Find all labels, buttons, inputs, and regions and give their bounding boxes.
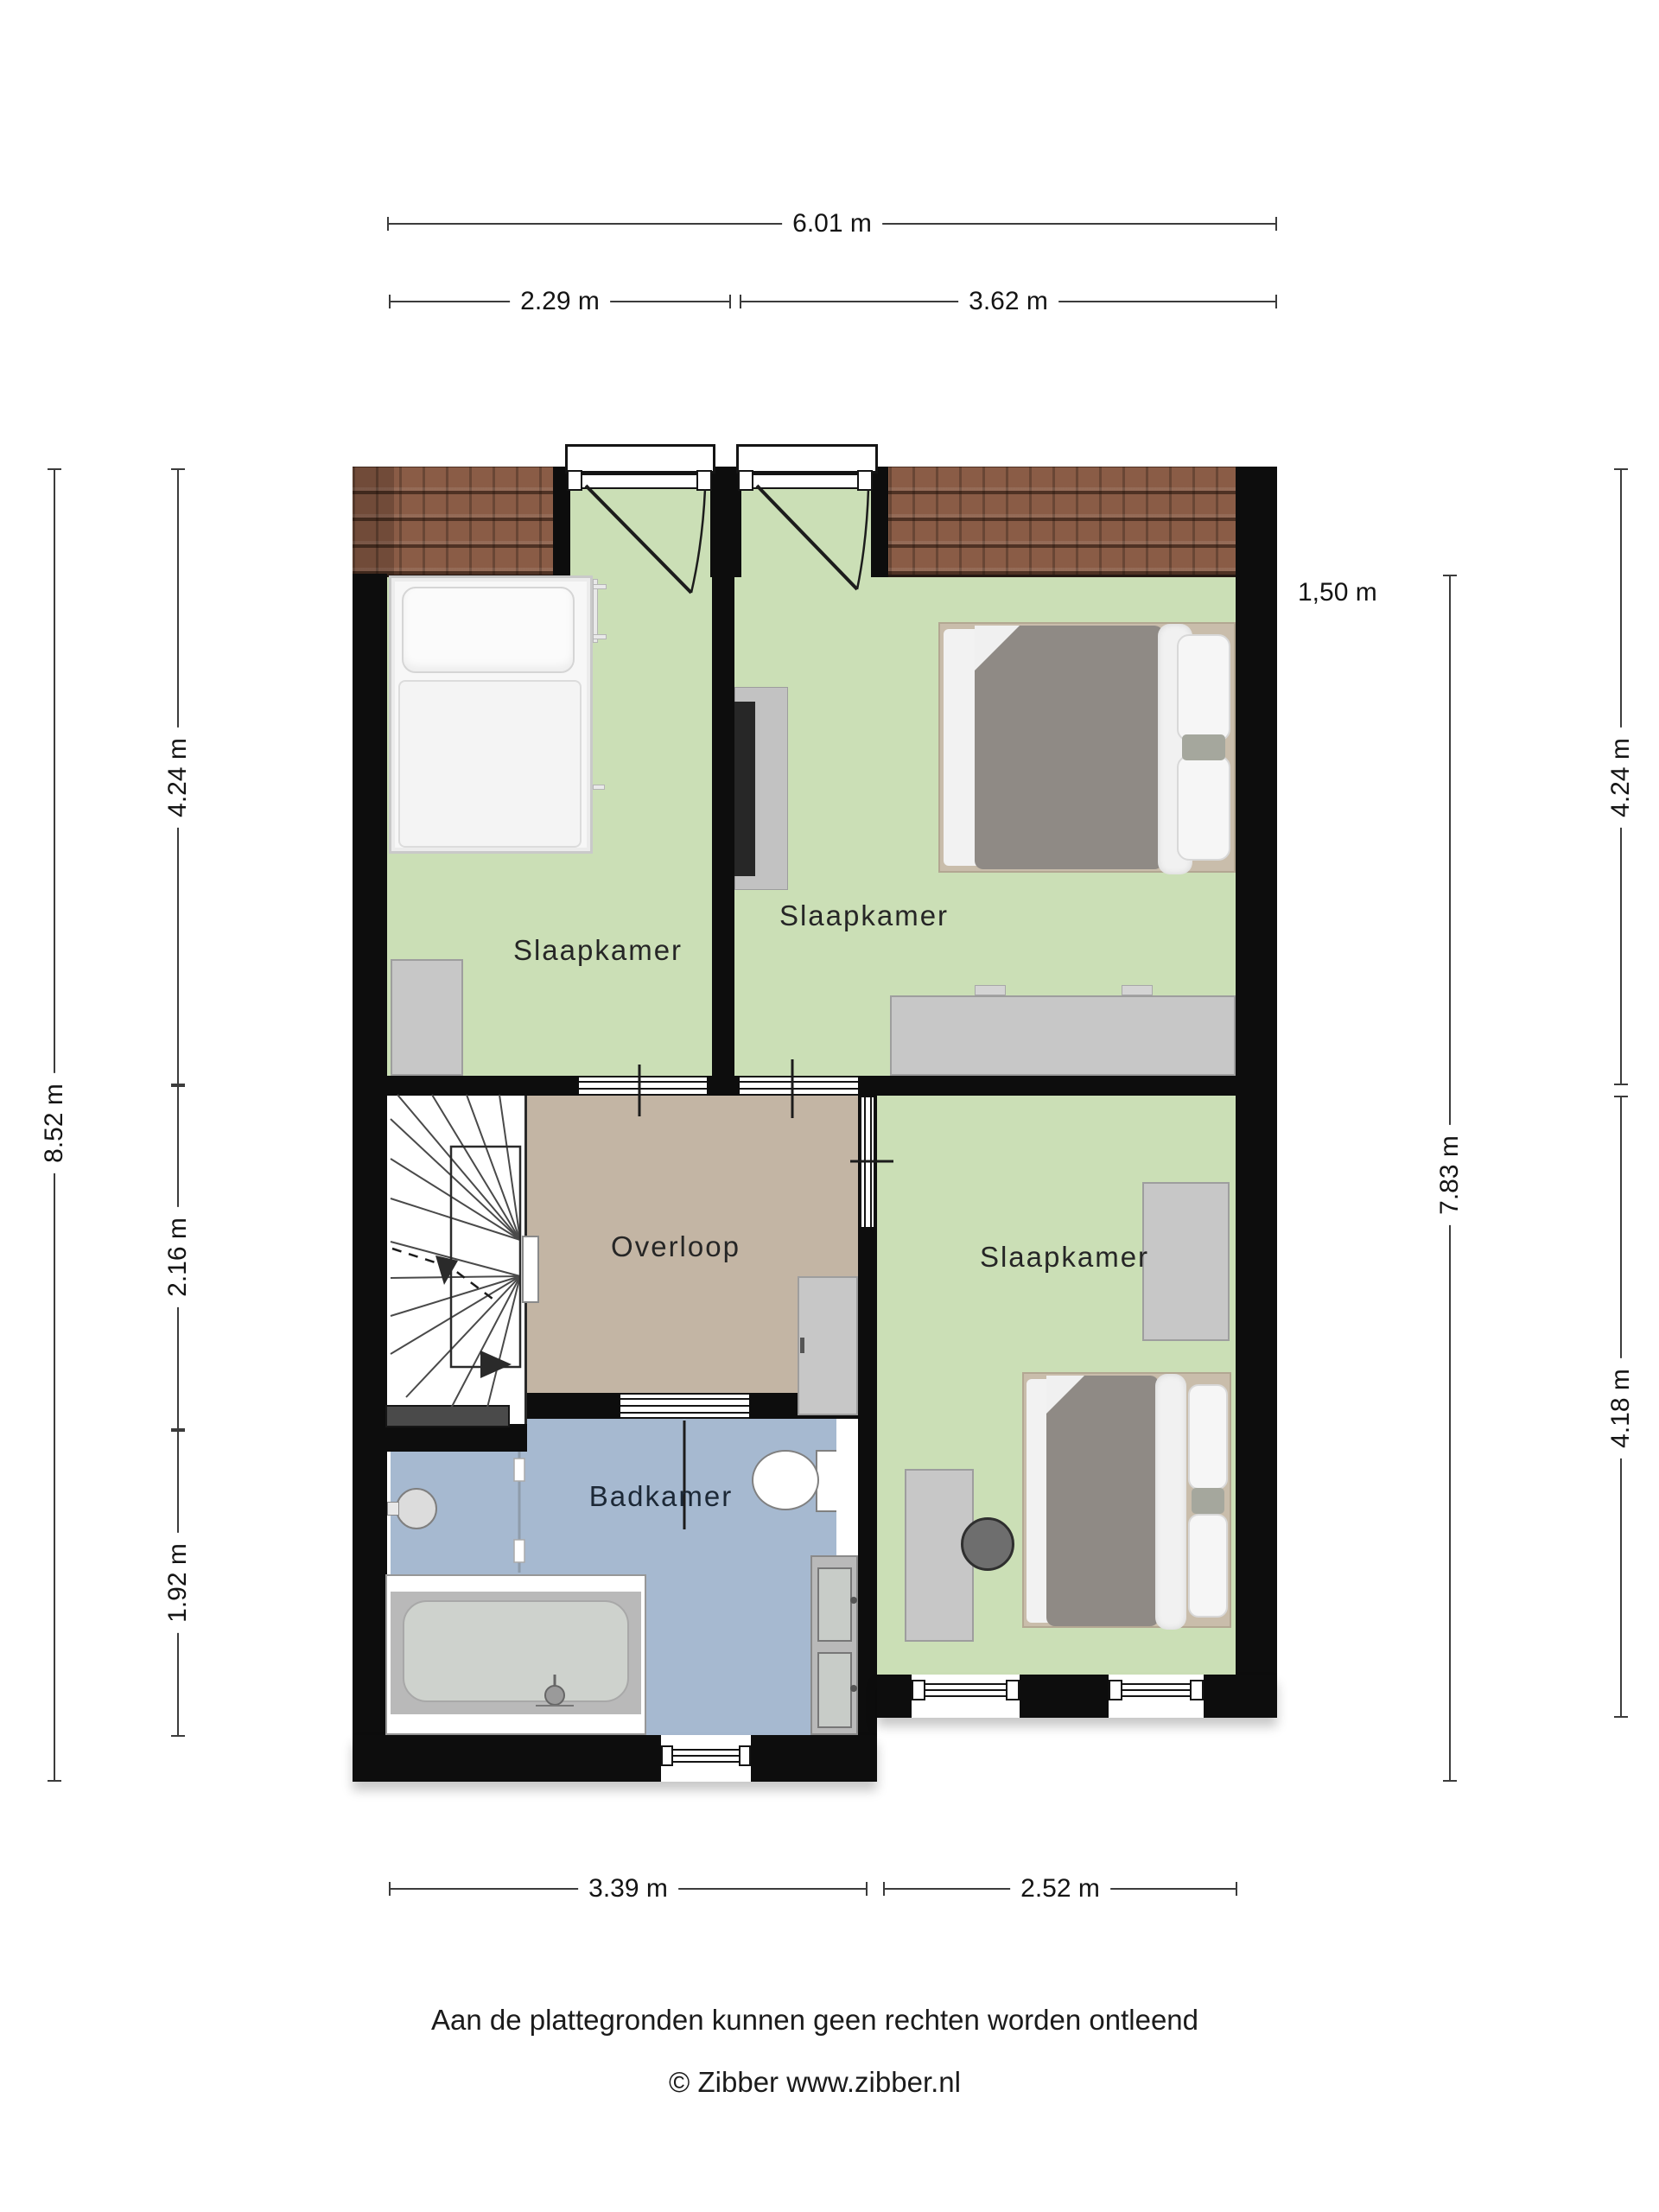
dimension-overall-width-label: 6.01 m — [782, 207, 882, 240]
dimension-top-right-width-label: 3.62 m — [958, 285, 1058, 318]
dimension-overall-height-label: 8.52 m — [38, 1073, 71, 1173]
footer-copyright: © Zibber www.zibber.nl — [669, 2066, 961, 2099]
label-bedroom-top-right: Slaapkamer — [779, 899, 949, 932]
label-bedroom-bottom-right: Slaapkamer — [980, 1241, 1149, 1274]
dimension-left-middle-label: 2.16 m — [162, 1207, 194, 1307]
partition-clip — [514, 1459, 524, 1481]
dimension-right-inner-label: 7.83 m — [1433, 1125, 1466, 1225]
roof-window-swing-left — [586, 486, 705, 593]
dimension-bottom-right-width-label: 2.52 m — [1010, 1872, 1110, 1905]
stair-arrow-down — [435, 1255, 458, 1285]
dimension-left-lower-label: 1.92 m — [162, 1533, 194, 1633]
dimension-knee-wall-label: 1,50 m — [1298, 578, 1377, 607]
label-bedroom-top-left: Slaapkamer — [513, 934, 683, 967]
dimension-right-lower-label: 4.18 m — [1605, 1358, 1637, 1459]
partition-clip — [514, 1540, 524, 1562]
footer-disclaimer: Aan de plattegronden kunnen geen rechten… — [431, 2004, 1198, 2037]
bath-faucet — [536, 1675, 574, 1706]
dimension-top-left-width-label: 2.29 m — [510, 285, 610, 318]
label-bathroom: Badkamer — [589, 1480, 733, 1513]
label-landing: Overloop — [611, 1230, 741, 1263]
roof-window-swing-right — [757, 486, 868, 589]
dimension-bottom-left-width-label: 3.39 m — [578, 1872, 678, 1905]
plan-linework — [0, 0, 1659, 2212]
dimension-left-upper-label: 4.24 m — [162, 728, 194, 828]
floorplan-page: Slaapkamer Slaapkamer Slaapkamer Overloo… — [0, 0, 1659, 2212]
dimension-right-upper-label: 4.24 m — [1605, 728, 1637, 828]
stairs — [391, 1095, 520, 1421]
